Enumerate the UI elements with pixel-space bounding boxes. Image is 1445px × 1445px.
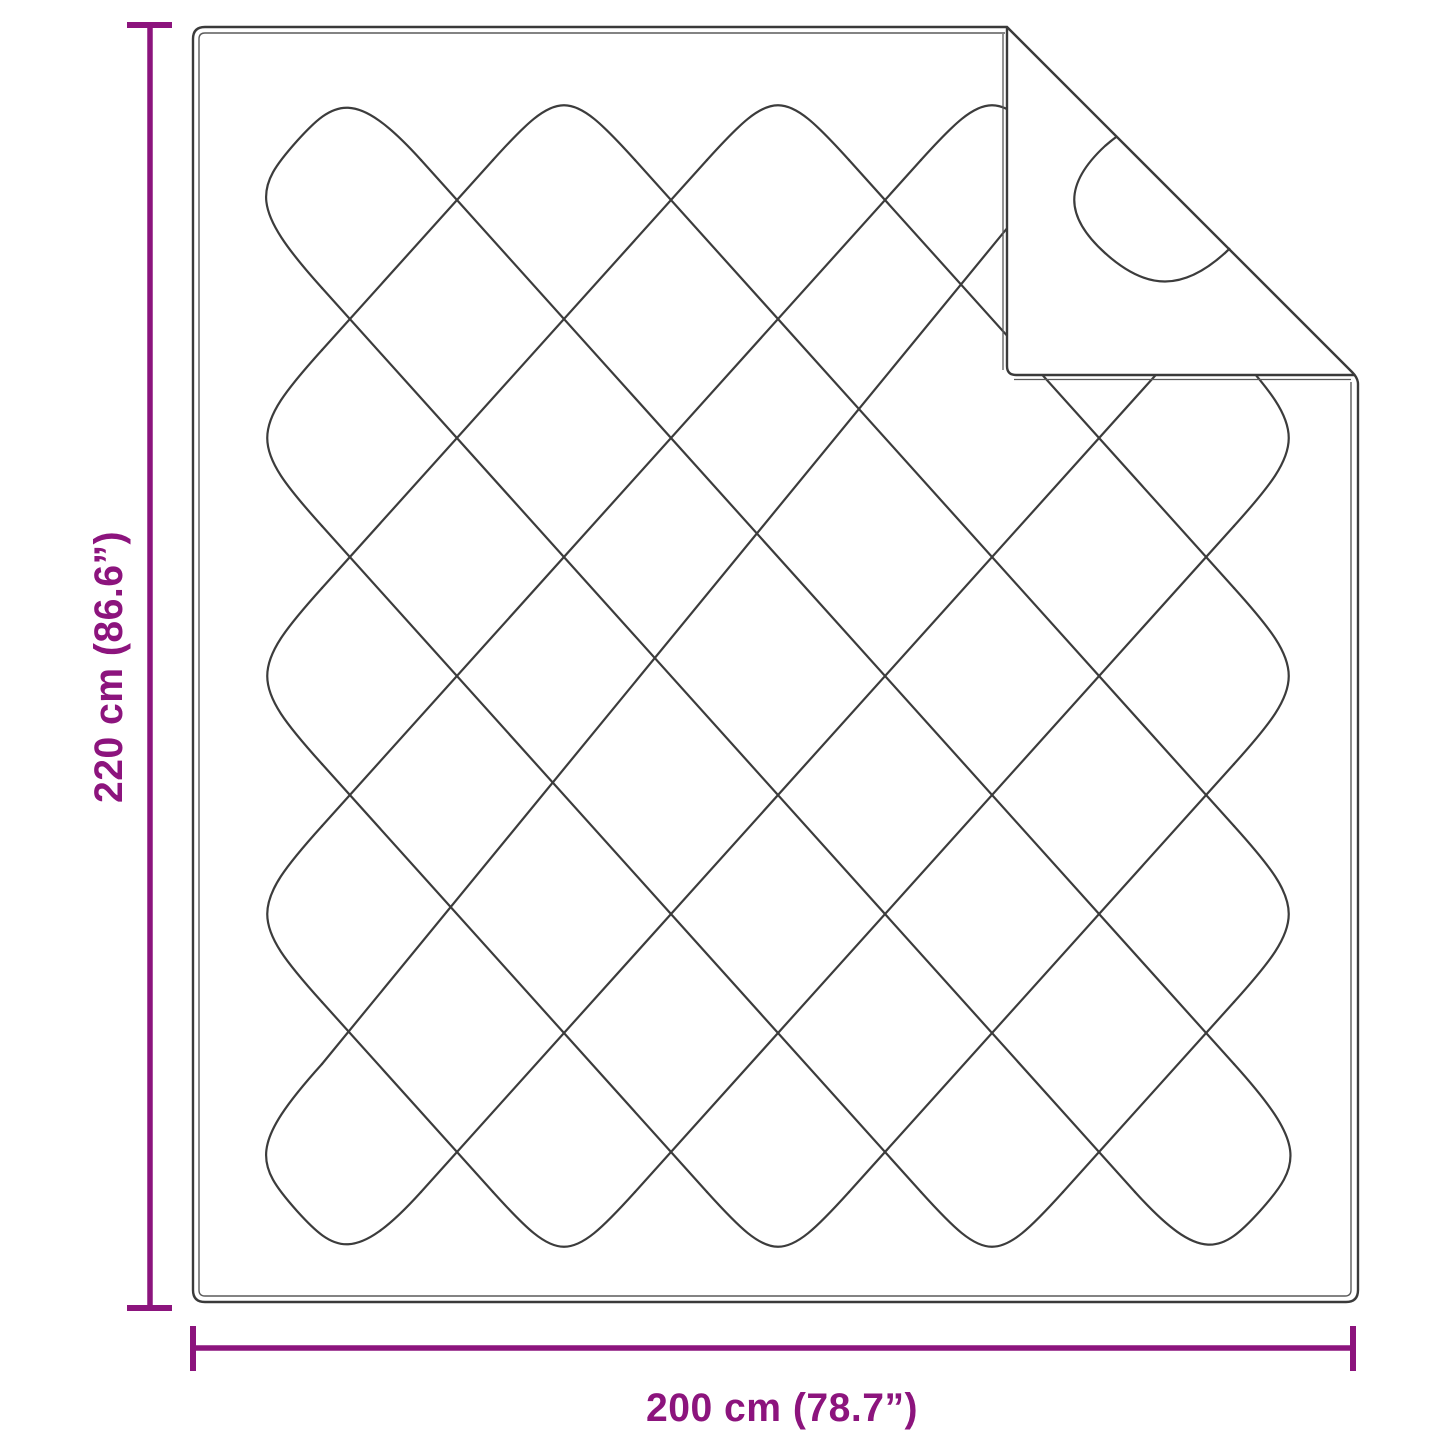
height-dimension-label: 220 cm (86.6”) [87,531,131,803]
blanket-dimension-diagram: 220 cm (86.6”) 200 cm (78.7”) [0,0,1445,1445]
diagram-canvas: 220 cm (86.6”) 200 cm (78.7”) [0,0,1445,1445]
background [0,0,1445,1445]
width-dimension-label: 200 cm (78.7”) [646,1386,918,1430]
